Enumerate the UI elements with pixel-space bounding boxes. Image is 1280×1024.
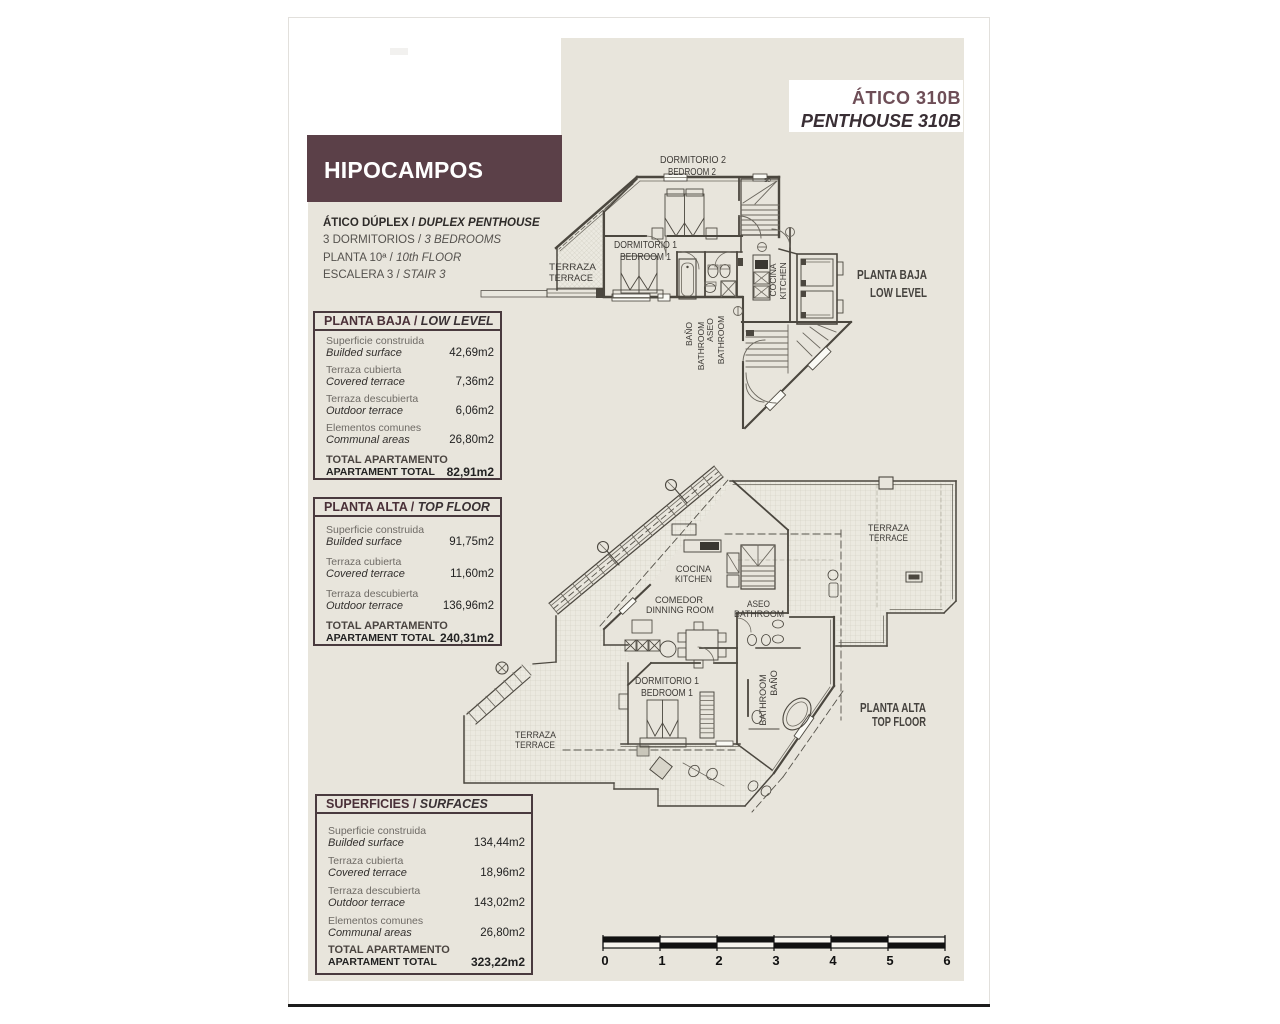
svg-text:1: 1 <box>658 953 665 968</box>
svg-text:2: 2 <box>715 953 722 968</box>
svg-text:COCINA: COCINA <box>768 263 778 296</box>
svg-text:DORMITORIO 1: DORMITORIO 1 <box>614 239 677 251</box>
svg-text:COMEDOR: COMEDOR <box>655 595 704 605</box>
svg-text:BATHROOM: BATHROOM <box>734 609 784 619</box>
svg-text:BATHROOM: BATHROOM <box>758 674 768 725</box>
svg-text:COCINA: COCINA <box>676 564 711 574</box>
svg-text:BEDROOM 1: BEDROOM 1 <box>620 251 671 263</box>
svg-text:TERRACE: TERRACE <box>549 273 593 284</box>
svg-text:KITCHEN: KITCHEN <box>675 574 712 584</box>
svg-text:TERRAZA: TERRAZA <box>549 262 597 273</box>
svg-text:DINNING ROOM: DINNING ROOM <box>646 605 714 615</box>
svg-text:ASEO: ASEO <box>747 599 770 609</box>
svg-text:PLANTA BAJA: PLANTA BAJA <box>857 267 927 282</box>
svg-text:PLANTA ALTA: PLANTA ALTA <box>860 700 926 715</box>
svg-text:DORMITORIO 2: DORMITORIO 2 <box>660 154 726 166</box>
svg-text:0: 0 <box>601 953 608 968</box>
svg-text:BEDROOM 1: BEDROOM 1 <box>641 688 693 699</box>
svg-text:3: 3 <box>772 953 779 968</box>
svg-text:DORMITORIO 1: DORMITORIO 1 <box>635 676 699 687</box>
svg-text:BAÑO: BAÑO <box>684 322 694 346</box>
svg-text:SD: SD <box>764 178 771 184</box>
svg-text:ASEO: ASEO <box>705 318 715 342</box>
svg-text:TERRACE: TERRACE <box>869 533 908 544</box>
svg-text:5: 5 <box>886 953 893 968</box>
svg-text:4: 4 <box>829 953 837 968</box>
svg-text:6: 6 <box>943 953 950 968</box>
svg-text:KITCHEN: KITCHEN <box>778 262 788 299</box>
svg-text:BATHROOM: BATHROOM <box>716 316 726 364</box>
svg-text:BEDROOM 2: BEDROOM 2 <box>668 166 716 178</box>
svg-text:BAÑO: BAÑO <box>769 670 779 696</box>
svg-text:TOP FLOOR: TOP FLOOR <box>872 714 926 729</box>
svg-text:LOW LEVEL: LOW LEVEL <box>870 285 927 300</box>
svg-text:TERRACE: TERRACE <box>515 740 555 751</box>
